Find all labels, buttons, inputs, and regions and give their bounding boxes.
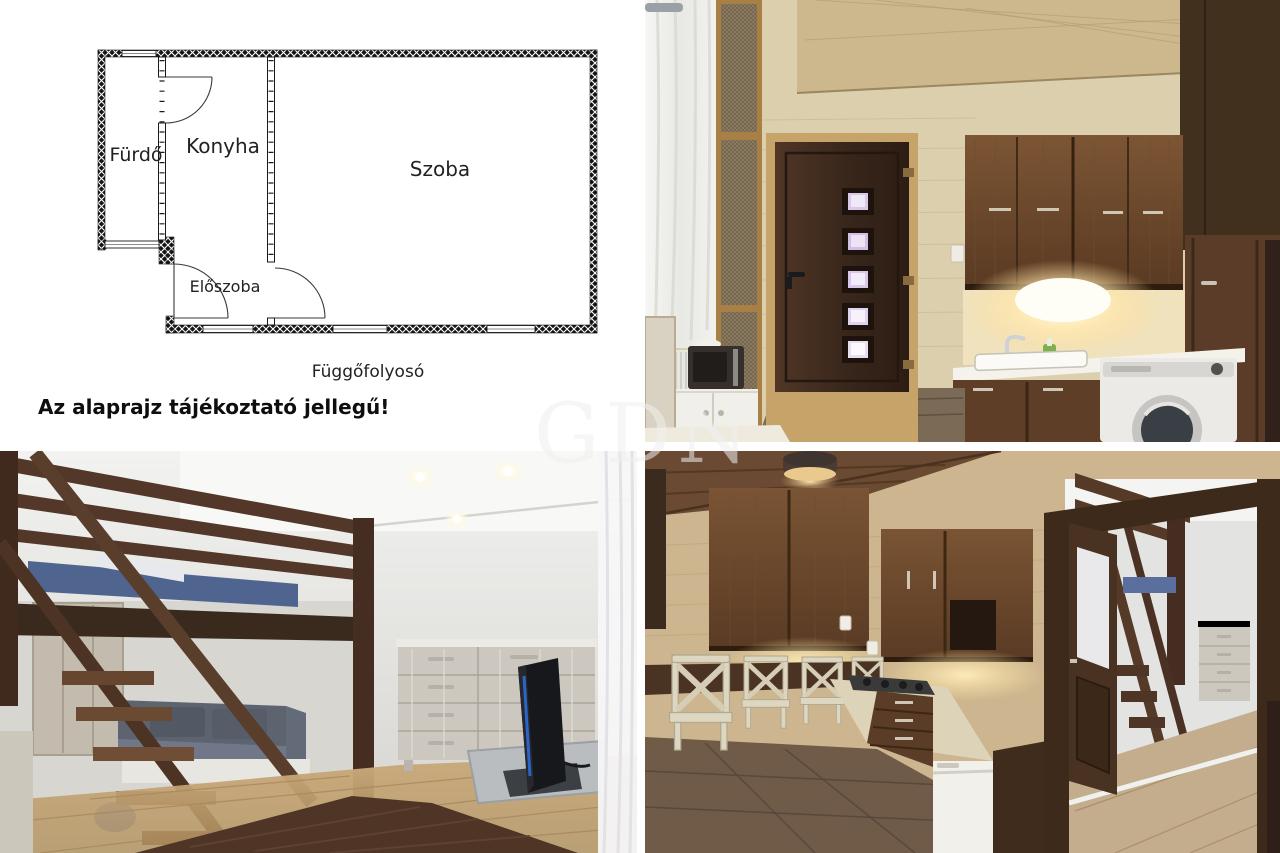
upper-cabinets-middle	[881, 529, 1033, 662]
microwave	[688, 339, 744, 389]
open-door	[1069, 523, 1117, 795]
ceiling	[180, 451, 637, 531]
power-outlet	[840, 616, 851, 630]
table-edge	[645, 425, 790, 442]
plan-outer-walls	[98, 50, 597, 333]
plan-interior-wall-ticks	[162, 60, 271, 260]
ceiling-lamp	[780, 451, 840, 492]
open-shelf	[950, 600, 996, 650]
room-label-kitchen: Konyha	[186, 134, 260, 158]
room-label-bathroom: Fürdő	[109, 144, 162, 166]
washing-machine	[1100, 358, 1237, 442]
floor-plan-panel: Fürdő Konyha Szoba Előszoba Függőfolyosó…	[0, 0, 637, 443]
curtain-rod	[645, 3, 683, 12]
mini-fridge	[933, 761, 993, 853]
room-label-hall: Előszoba	[190, 277, 261, 296]
photo-kitchen-doorway	[645, 451, 1280, 853]
door-handle	[788, 272, 805, 277]
photo-entry-kitchen	[645, 0, 1280, 442]
sink-base-cabinet	[953, 380, 1103, 442]
room-label-room: Szoba	[410, 157, 470, 181]
frosted-glass	[1077, 547, 1109, 669]
stair-tread	[76, 707, 172, 721]
wardrobe-tall	[1180, 0, 1280, 250]
floor-plan-drawing: Fürdő Konyha Szoba Előszoba Függőfolyosó…	[0, 0, 637, 443]
entrance-door	[766, 133, 918, 442]
plan-disclaimer: Az alaprajz tájékoztató jellegű!	[38, 395, 389, 419]
cabinet-side-panel	[993, 741, 1047, 853]
door-handle	[1070, 659, 1077, 663]
stair-tread	[62, 671, 154, 685]
plan-windows	[105, 51, 535, 333]
dresser-through-door	[1198, 621, 1250, 701]
mirror-frame	[645, 317, 675, 437]
left-cabinet-edge	[645, 469, 666, 629]
door-hinge	[903, 168, 914, 177]
photo-loft-room	[0, 451, 637, 853]
sink-inset	[975, 351, 1087, 371]
door-glass-squares	[842, 188, 874, 363]
corridor-label: Függőfolyosó	[312, 362, 424, 382]
light-switch	[951, 245, 964, 262]
side-door-handle	[1201, 281, 1217, 285]
right-shelf-glimpse	[1267, 701, 1280, 853]
mattress-through-door	[1123, 577, 1176, 593]
plan-window-midlines	[105, 54, 535, 330]
stair-tread	[93, 747, 194, 761]
photo-collage: Fürdő Konyha Szoba Előszoba Függőfolyosó…	[0, 0, 1280, 853]
power-outlet	[867, 641, 878, 655]
